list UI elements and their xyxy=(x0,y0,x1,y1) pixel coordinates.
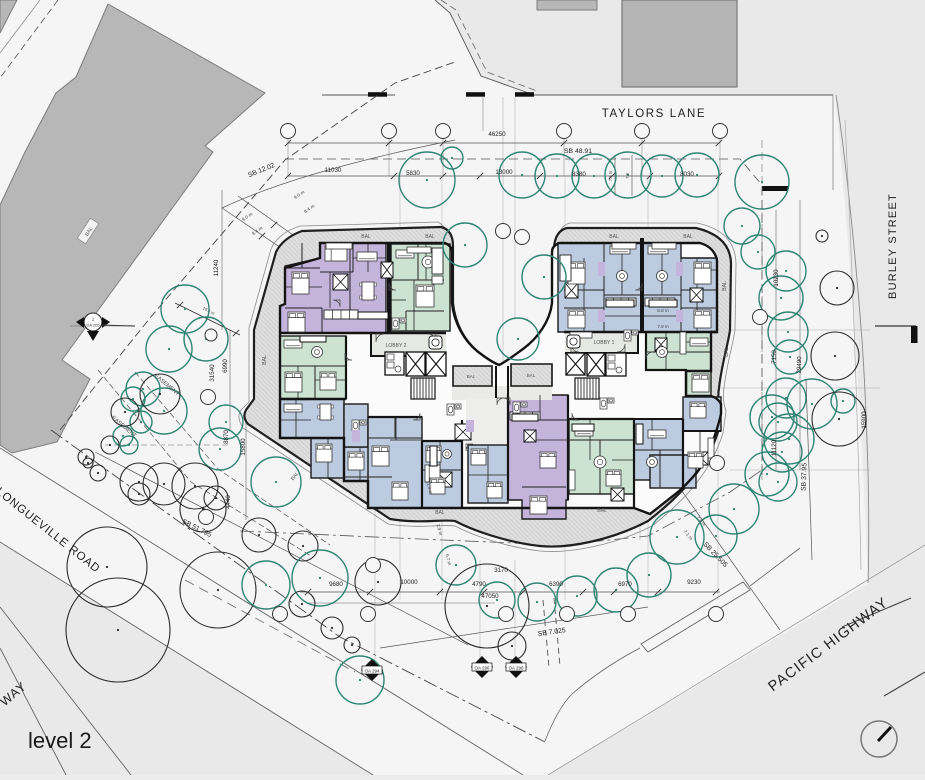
svg-text:BAL: BAL xyxy=(683,234,693,240)
svg-text:11240: 11240 xyxy=(213,259,220,276)
svg-text:BAL: BAL xyxy=(722,281,728,291)
svg-text:11030: 11030 xyxy=(325,167,342,174)
svg-text:47050: 47050 xyxy=(481,593,499,600)
svg-text:TAYLORS LANE: TAYLORS LANE xyxy=(602,108,706,120)
svg-text:9230: 9230 xyxy=(687,579,701,586)
svg-text:OA 296: OA 296 xyxy=(474,666,490,671)
svg-text:OA 294: OA 294 xyxy=(364,669,380,674)
svg-text:BAL: BAL xyxy=(262,355,268,365)
svg-text:8870: 8870 xyxy=(223,430,230,444)
svg-text:BAL: BAL xyxy=(724,347,730,357)
svg-text:6970: 6970 xyxy=(618,581,632,588)
svg-text:DA 205: DA 205 xyxy=(86,323,100,328)
svg-text:10230: 10230 xyxy=(773,269,780,287)
svg-text:5830: 5830 xyxy=(406,170,420,177)
svg-text:8.8 m: 8.8 m xyxy=(657,308,669,313)
svg-text:OA 296: OA 296 xyxy=(508,666,524,671)
svg-text:4440: 4440 xyxy=(225,495,232,509)
svg-text:3170: 3170 xyxy=(494,567,508,574)
svg-text:6390: 6390 xyxy=(549,581,563,588)
svg-text:9680: 9680 xyxy=(329,581,343,588)
svg-text:13000: 13000 xyxy=(495,169,513,176)
svg-text:BAL: BAL xyxy=(361,234,371,240)
svg-text:15800: 15800 xyxy=(240,438,247,456)
svg-text:7.9 m: 7.9 m xyxy=(657,324,669,329)
svg-text:BAL: BAL xyxy=(527,373,536,378)
svg-text:31540: 31540 xyxy=(209,364,216,382)
svg-text:10000: 10000 xyxy=(400,579,418,586)
svg-text:7150: 7150 xyxy=(771,350,778,364)
svg-text:LOBBY 2: LOBBY 2 xyxy=(386,343,407,349)
svg-text:8380: 8380 xyxy=(572,171,586,178)
svg-text:6990: 6990 xyxy=(222,359,229,373)
svg-text:SB 48.91: SB 48.91 xyxy=(564,148,592,155)
svg-text:11120: 11120 xyxy=(771,439,778,456)
svg-text:BAL: BAL xyxy=(425,234,435,240)
svg-text:level 2: level 2 xyxy=(28,728,92,753)
svg-text:SB 37.95: SB 37.95 xyxy=(801,463,809,491)
svg-text:29490: 29490 xyxy=(796,356,804,374)
svg-text:BAL: BAL xyxy=(609,234,619,240)
svg-text:BAL: BAL xyxy=(597,508,607,514)
svg-text:7.9: 7.9 xyxy=(625,172,630,178)
svg-text:7.5 m: 7.5 m xyxy=(608,170,613,181)
svg-text:4790: 4790 xyxy=(472,581,486,588)
svg-text:15900: 15900 xyxy=(861,411,868,429)
svg-text:8030: 8030 xyxy=(680,171,694,178)
svg-text:BAL: BAL xyxy=(467,374,476,379)
svg-text:LOBBY 1: LOBBY 1 xyxy=(594,340,615,346)
svg-text:BURLEY STREET: BURLEY STREET xyxy=(887,193,899,299)
svg-text:BAL: BAL xyxy=(435,510,445,516)
svg-text:46250: 46250 xyxy=(488,131,506,138)
